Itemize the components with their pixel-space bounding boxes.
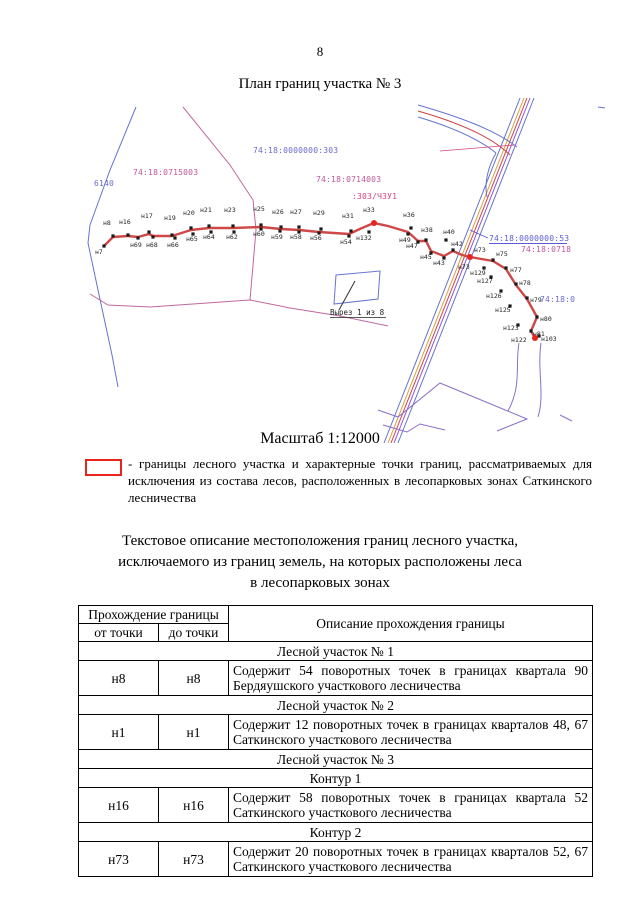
point-label: н68 [146,241,158,249]
point-cell: н73 [159,842,229,877]
point-cell: н16 [159,788,229,823]
legend: - границы лесного участка и характерные … [85,455,592,506]
left-boundary-line [88,107,136,387]
boundary-point-н17 [147,230,150,233]
boundary-point-н8 [111,234,114,237]
cadastral-label: 74:18:0715003 [133,168,198,177]
description-cell: Содержит 54 поворотных точек в границах … [229,661,593,696]
table-section-row: Лесной участок № 3 [79,750,593,769]
boundary-point-н79 [525,296,528,299]
point-label: н21 [200,206,212,214]
point-cell: н1 [159,715,229,750]
boundary-point-н36 [409,226,412,229]
point-label: н47 [406,242,418,250]
section-label: Лесной участок № 2 [79,696,593,715]
point-label: н59 [271,233,283,241]
point-label: н54 [340,238,352,246]
point-label: н8 [103,219,111,227]
boundary-table-body: Лесной участок № 1н8н8Содержит 54 поворо… [79,642,593,877]
point-label: н29 [313,209,325,217]
point-label: н78 [519,279,531,287]
point-label: н69 [130,241,142,249]
scale-caption: Масштаб 1:12000 [0,430,640,448]
point-label: н80 [540,315,552,323]
table-section-row: Контур 1 [79,769,593,788]
point-label: н16 [119,218,131,226]
section-label: Лесной участок № 1 [79,642,593,661]
table-data-row: н73н73Содержит 20 поворотных точек в гра… [79,842,593,877]
page-number: 8 [0,44,640,60]
section-label: Контур 2 [79,823,593,842]
boundary-point-н80 [535,315,538,318]
map-points: н7н8н16н69н17н68н19н66н20н65н21н64н23н62… [95,205,557,344]
point-label: н127 [477,277,493,285]
point-label: н75 [496,250,508,258]
boundary-point-н19 [170,233,173,236]
section-heading-line: в лесопарковых зонах [0,573,640,594]
boundary-point-н26 [279,225,282,228]
point-label: н132 [356,234,372,242]
point-label: н123 [503,324,519,332]
point-label: н62 [226,233,238,241]
road-lines [384,98,605,443]
table-data-row: н16н16Содержит 58 поворотных точек в гра… [79,788,593,823]
point-cell: н73 [79,842,159,877]
point-label: н103 [541,335,557,343]
description-cell: Содержит 12 поворотных точек в границах … [229,715,593,750]
point-label: н17 [141,212,153,220]
point-label: н122 [511,336,527,344]
boundary-point-н21 [207,224,210,227]
point-label: н36 [403,211,415,219]
legend-swatch-red-rect [85,459,122,476]
boundary-point-н38 [424,238,427,241]
boundary-point-н42 [451,248,454,251]
boundary-point-н23 [231,224,234,227]
point-label: н31 [342,212,354,220]
cadastral-label: 74:18:0718 [521,245,571,254]
boundary-point-н73 [467,254,473,260]
boundary-point-н77 [504,266,507,269]
boundary-point-н122 [532,335,538,341]
header-to: до точки [159,624,229,642]
header-passage: Прохождение границы [79,606,229,624]
point-label: н129 [470,269,486,277]
point-label: н42 [451,240,463,248]
point-label: н64 [203,233,215,241]
table-section-row: Лесной участок № 1 [79,642,593,661]
point-label: н45 [420,253,432,261]
cadastral-label: :303/ЧЗУ1 [352,192,397,201]
header-from: от точки [79,624,159,642]
cadastral-label: 74:18:0000000:53 [489,234,569,243]
boundary-point-н69 [136,236,139,239]
point-label: н65 [186,235,198,243]
table-section-row: Лесной участок № 2 [79,696,593,715]
cadastral-label: 74:18:0 [540,295,575,304]
point-label: н125 [495,306,511,314]
section-heading: Текстовое описание местоположения границ… [0,531,640,594]
point-label: н73 [458,263,470,271]
boundary-point-н25 [259,223,262,226]
point-label: н126 [486,292,502,300]
table-data-row: н1н1Содержит 12 поворотных точек в грани… [79,715,593,750]
point-label: н58 [290,233,302,241]
cutout-polygon: Вырез 1 из 8 [330,271,386,318]
point-label: н60 [253,230,265,238]
boundary-point-н78 [514,282,517,285]
section-heading-line: Текстовое описание местоположения границ… [0,531,640,552]
point-label: н7 [95,248,103,256]
plan-map-svg: Вырез 1 из 8 74:18:071500374:18:0000000:… [0,95,640,445]
boundary-point-н27 [297,225,300,228]
point-label: н56 [310,234,322,242]
boundary-point-н29 [319,227,322,230]
table-data-row: н8н8Содержит 54 поворотных точек в грани… [79,661,593,696]
table-section-row: Контур 2 [79,823,593,842]
boundary-point-н66 [173,236,176,239]
point-label: н40 [443,228,455,236]
point-cell: н16 [79,788,159,823]
point-label: н33 [363,206,375,214]
description-cell: Содержит 58 поворотных точек в границах … [229,788,593,823]
cadastral-labels: 74:18:071500374:18:0000000:30374:18:0714… [94,146,575,304]
page-title: План границ участка № 3 [0,76,640,93]
point-label: н26 [272,208,284,216]
cutout-label: Вырез 1 из 8 [330,308,385,317]
boundary-point-н40 [444,238,447,241]
point-label: н66 [167,241,179,249]
point-label: н77 [510,266,522,274]
boundary-point-н7 [102,244,105,247]
point-label: н20 [183,209,195,217]
cadastral-label: 6140 [94,179,114,188]
point-label: н38 [421,226,433,234]
boundary-point-н33 [371,220,377,226]
point-label: н27 [290,208,302,216]
point-label: н25 [253,205,265,213]
point-label: н23 [224,206,236,214]
section-label: Лесной участок № 3 [79,750,593,769]
point-label: н43 [433,259,445,267]
point-cell: н8 [159,661,229,696]
cadastral-label: 74:18:0000000:303 [253,146,338,155]
legend-description: - границы лесного участка и характерные … [128,455,592,506]
cadastral-label: 74:18:0714003 [316,175,381,184]
header-description: Описание прохождения границы [229,606,593,642]
point-label: н73 [474,246,486,254]
point-cell: н8 [79,661,159,696]
boundary-table: Прохождение границы Описание прохождения… [78,605,593,877]
boundary-point-н16 [126,233,129,236]
section-heading-line: исключаемого из границ земель, на которы… [0,552,640,573]
boundary-point-н31 [349,229,352,232]
point-cell: н1 [79,715,159,750]
boundary-point-н68 [151,235,154,238]
description-cell: Содержит 20 поворотных точек в границах … [229,842,593,877]
boundary-point-н75 [491,258,494,261]
point-label: н79 [530,296,542,304]
plan-map: Вырез 1 из 8 74:18:071500374:18:0000000:… [0,95,640,445]
point-label: н19 [164,214,176,222]
boundary-point-н20 [189,226,192,229]
section-label: Контур 1 [79,769,593,788]
table-header-row: Прохождение границы Описание прохождения… [79,606,593,624]
